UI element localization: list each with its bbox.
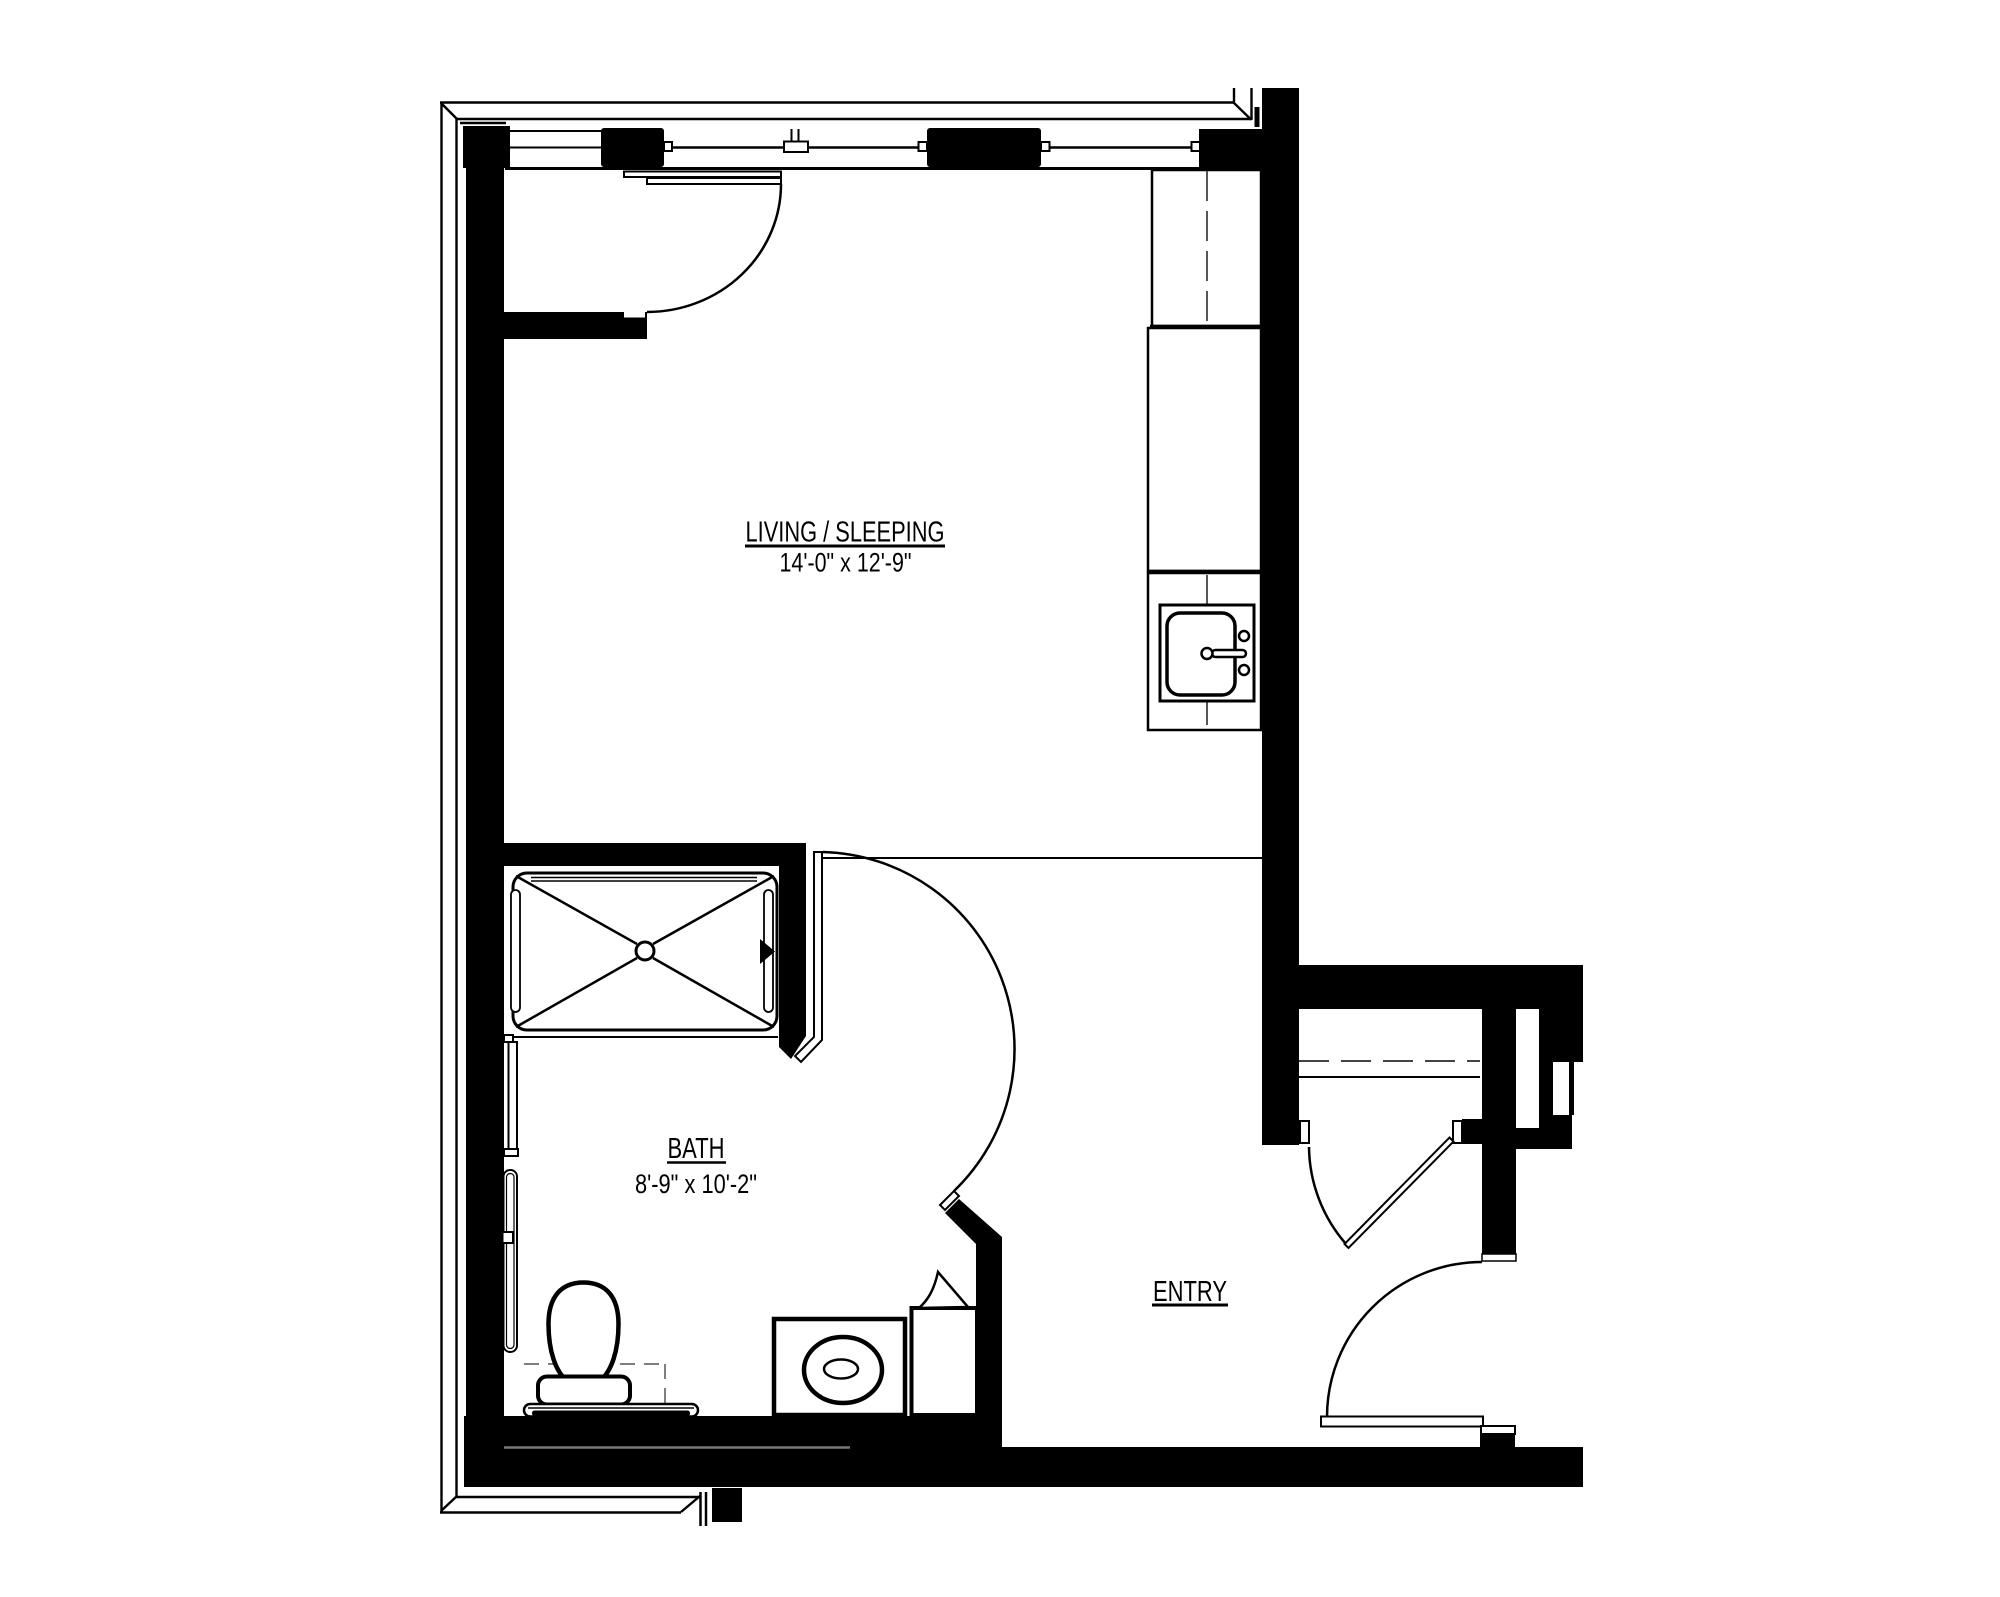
svg-text:8'-9" x 10'-2": 8'-9" x 10'-2" — [635, 1169, 757, 1199]
svg-text:ENTRY: ENTRY — [1153, 1276, 1227, 1308]
svg-text:14'-0" x 12'-9": 14'-0" x 12'-9" — [780, 548, 912, 578]
svg-text:BATH: BATH — [668, 1133, 725, 1165]
svg-text:LIVING / SLEEPING: LIVING / SLEEPING — [746, 517, 945, 549]
